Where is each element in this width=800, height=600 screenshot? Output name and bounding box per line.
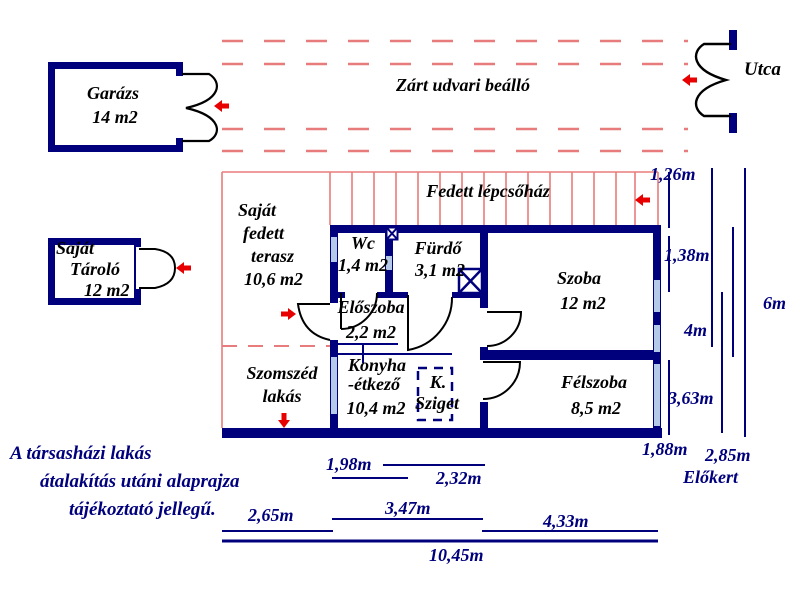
storage-door-opening (136, 247, 147, 289)
note-line-1: A társasházi lakás (10, 444, 152, 463)
wc-name: Wc (351, 234, 375, 252)
bath-door-icon (408, 295, 452, 350)
dim-1-38: 1,38m (664, 246, 710, 264)
dim-1-26: 1,26m (650, 165, 696, 183)
floor-plan-page: Garázs 14 m2 Utca Zárt udvari beálló Saj… (0, 0, 800, 600)
hall-area: 2,2 m2 (346, 323, 396, 341)
island-label-2: Sziget (415, 394, 459, 412)
note-line-2: átalakítás utáni alaprajza (40, 472, 240, 491)
wc-area: 1,4 m2 (338, 256, 388, 274)
courtyard-dashed-lines (222, 41, 688, 151)
garage-door-icon (182, 74, 217, 141)
storage-label-2: Tároló (70, 260, 120, 278)
dim-6: 6m (763, 294, 786, 312)
hall-name: Előszoba (337, 298, 404, 316)
bath-name: Fürdő (414, 239, 461, 257)
note-line-3: tájékoztató jellegű. (69, 500, 216, 519)
kitchen-label-1: Konyha (348, 356, 406, 374)
dim-4-33: 4,33m (543, 512, 589, 530)
kitchen-area: 10,4 m2 (346, 399, 405, 417)
dim-2-65: 2,65m (248, 506, 294, 524)
street-entry-arrow-icon (682, 74, 697, 86)
terrace-label-2: fedett (243, 224, 284, 242)
dim-2-32: 2,32m (436, 469, 482, 487)
stairwell-label: Fedett lépcsőház (426, 182, 550, 200)
dim-2-85: 2,85m (705, 446, 751, 464)
stairwell-entry-arrow-icon (635, 194, 650, 206)
neighbor-label-2: lakás (262, 387, 301, 405)
shaft-x-symbol-small (387, 228, 398, 240)
dim-1-98: 1,98m (326, 455, 372, 473)
garage-door-opening (176, 76, 187, 138)
halfroom-door-icon (483, 362, 520, 399)
garage-name: Garázs (87, 84, 139, 102)
halfroom-area: 8,5 m2 (571, 399, 621, 417)
neighbor-arrow-icon (278, 413, 290, 428)
storage-area: 12 m2 (84, 281, 130, 299)
terrace-area: 10,6 m2 (244, 270, 303, 288)
dim-3-63: 3,63m (668, 389, 714, 407)
kitchen-label-2: -étkező (348, 375, 400, 393)
island-label-1: K. (430, 373, 447, 391)
dim-4: 4m (684, 321, 707, 339)
dim-1-88: 1,88m (642, 440, 688, 458)
courtyard-label: Zárt udvari beálló (396, 76, 530, 94)
neighbor-label-1: Szomszéd (246, 364, 317, 382)
dim-3-47: 3,47m (385, 499, 431, 517)
room-name: Szoba (557, 269, 601, 287)
terrace-label-1: Saját (238, 201, 276, 219)
dim-10-45: 10,45m (429, 546, 484, 564)
bath-area: 3,1 m2 (415, 261, 465, 279)
garage-entry-arrow-icon (214, 100, 229, 112)
terrace-label-3: terasz (251, 247, 294, 265)
room-area: 12 m2 (560, 294, 606, 312)
garage-area: 14 m2 (92, 108, 138, 126)
storage-label-1: Saját (56, 239, 94, 257)
front-garden-label: Előkert (683, 468, 738, 486)
room-door-icon (487, 312, 521, 346)
halfroom-name: Félszoba (561, 373, 627, 391)
street-label: Utca (744, 60, 781, 79)
street-gate-icon (696, 30, 737, 133)
storage-entry-arrow-icon (176, 262, 191, 274)
terrace-entry-arrow-icon (281, 308, 296, 320)
terrace-door-icon (298, 304, 330, 340)
